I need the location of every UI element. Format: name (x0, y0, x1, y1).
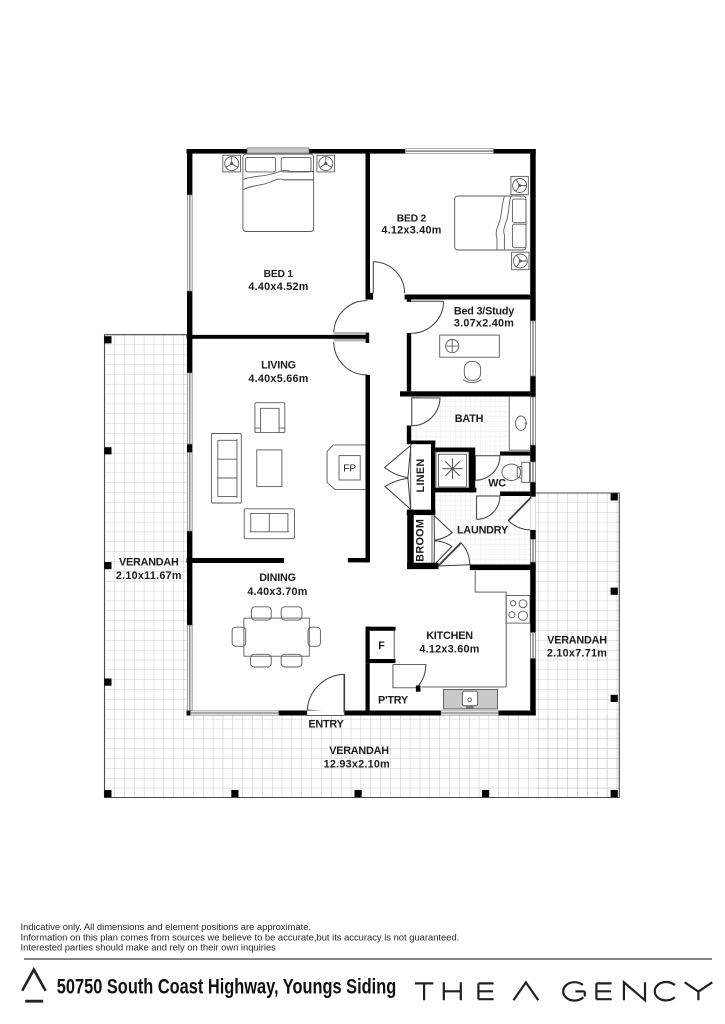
svg-text:2.10x7.71m: 2.10x7.71m (547, 648, 607, 660)
svg-text:2.10x11.67m: 2.10x11.67m (116, 570, 182, 582)
svg-text:4.40x4.52m: 4.40x4.52m (248, 281, 308, 293)
svg-text:50750 South Coast Highway, You: 50750 South Coast Highway, Youngs Siding (57, 975, 396, 998)
svg-text:KITCHEN: KITCHEN (426, 630, 473, 642)
svg-text:LIVING: LIVING (261, 360, 296, 372)
svg-text:P'TRY: P'TRY (378, 695, 409, 707)
svg-text:BROOM: BROOM (415, 519, 427, 562)
svg-text:Interested parties should make: Interested parties should make and rely … (21, 942, 277, 953)
svg-text:LINEN: LINEN (415, 459, 427, 493)
svg-text:VERANDAH: VERANDAH (329, 745, 389, 757)
svg-text:BED 1: BED 1 (264, 269, 294, 280)
svg-text:VERANDAH: VERANDAH (119, 557, 179, 569)
svg-text:3.07x2.40m: 3.07x2.40m (454, 318, 514, 330)
svg-text:F: F (378, 640, 385, 652)
svg-text:LAUNDRY: LAUNDRY (457, 525, 509, 537)
svg-text:12.93x2.10m: 12.93x2.10m (324, 759, 390, 771)
svg-text:4.40x3.70m: 4.40x3.70m (247, 586, 307, 598)
svg-text:FP: FP (343, 464, 356, 475)
svg-text:ENTRY: ENTRY (308, 719, 344, 731)
svg-text:4.12x3.40m: 4.12x3.40m (381, 225, 441, 237)
svg-text:Indicative only. All dimension: Indicative only. All dimensions and elem… (21, 921, 312, 932)
svg-text:WC: WC (488, 478, 506, 490)
svg-text:BED 2: BED 2 (397, 214, 427, 225)
svg-text:VERANDAH: VERANDAH (547, 635, 607, 647)
svg-text:DINING: DINING (259, 572, 296, 584)
svg-text:BATH: BATH (455, 413, 484, 425)
svg-text:4.12x3.60m: 4.12x3.60m (419, 644, 479, 656)
svg-text:Bed 3/Study: Bed 3/Study (454, 306, 514, 318)
svg-text:4.40x5.66m: 4.40x5.66m (248, 373, 308, 385)
